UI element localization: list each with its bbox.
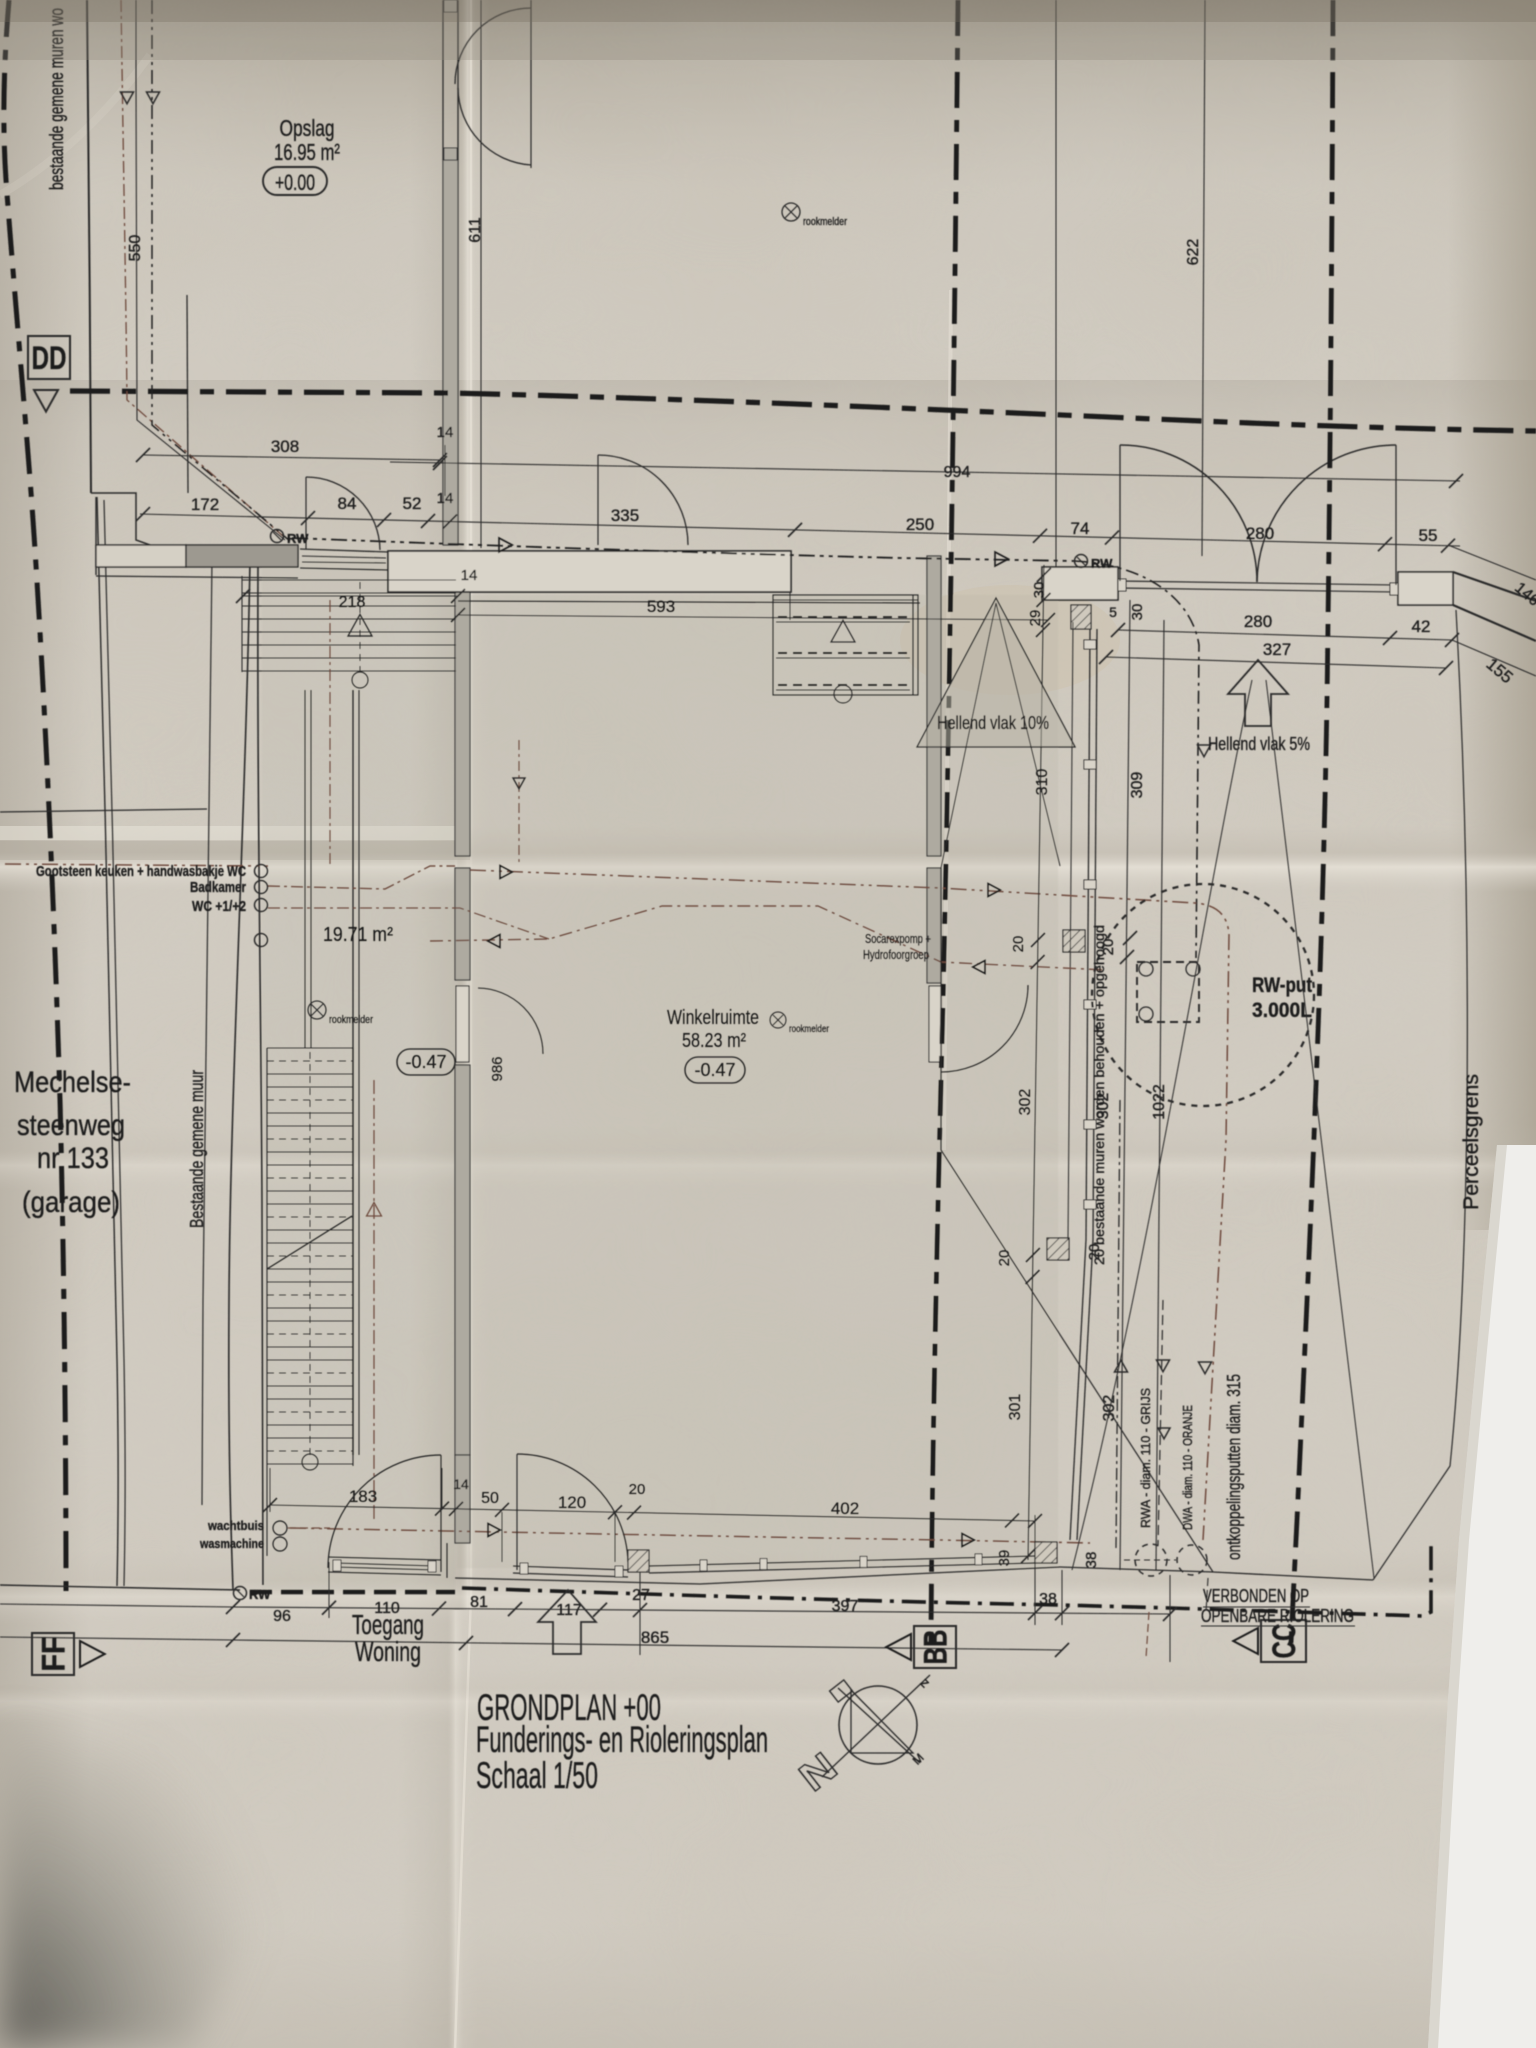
svg-text:BB: BB [918,1630,954,1665]
svg-text:172: 172 [191,495,219,514]
svg-text:52: 52 [403,494,422,513]
svg-text:27: 27 [632,1587,650,1604]
svg-text:38: 38 [1039,1591,1057,1608]
svg-text:WC +1/+2: WC +1/+2 [192,898,246,915]
svg-text:50: 50 [481,1490,499,1507]
svg-text:20: 20 [1010,936,1027,953]
svg-text:865: 865 [641,1628,669,1647]
svg-text:58.23 m²: 58.23 m² [682,1030,746,1052]
svg-text:622: 622 [1185,239,1202,266]
svg-text:5: 5 [1109,604,1117,620]
svg-text:-0.47: -0.47 [694,1060,735,1080]
svg-text:55: 55 [1419,526,1438,545]
svg-text:Perceelsgrens: Perceelsgrens [1460,1074,1483,1210]
svg-text:20 bestaande muren worden beho: 20 bestaande muren worden behouden + opg… [1091,925,1107,1265]
svg-text:Hellend vlak 10%: Hellend vlak 10% [937,713,1049,733]
svg-text:14: 14 [453,1476,469,1492]
svg-text:(garage): (garage) [22,1186,120,1219]
svg-text:ontkoppelingsputten diam. 315: ontkoppelingsputten diam. 315 [1224,1374,1244,1560]
svg-text:280: 280 [1246,524,1274,543]
svg-text:DWA - diam. 110 - ORANJE: DWA - diam. 110 - ORANJE [1180,1405,1195,1530]
svg-text:3.000L: 3.000L [1252,999,1312,1022]
svg-text:38: 38 [1083,1552,1100,1569]
svg-text:DD: DD [32,340,67,376]
svg-text:Badkamer: Badkamer [190,879,246,896]
svg-text:Mechelse-: Mechelse- [14,1066,131,1099]
svg-text:335: 335 [611,506,639,525]
svg-text:1022: 1022 [1151,1084,1168,1120]
svg-text:611: 611 [467,217,484,243]
svg-text:rookmelder: rookmelder [803,216,847,228]
svg-text:550: 550 [127,235,144,262]
svg-text:397: 397 [832,1598,859,1615]
svg-text:+0.00: +0.00 [275,170,315,195]
svg-text:Opslag: Opslag [280,115,335,141]
svg-text:rookmelder: rookmelder [329,1014,373,1026]
svg-text:117: 117 [556,1602,582,1619]
svg-text:308: 308 [271,437,299,456]
svg-text:VERBONDEN OP: VERBONDEN OP [1203,1586,1309,1606]
svg-text:402: 402 [831,1499,859,1518]
svg-text:96: 96 [273,1608,291,1625]
svg-text:302: 302 [1017,1089,1034,1116]
svg-text:280: 280 [1244,612,1272,631]
svg-text:Woning: Woning [355,1636,421,1667]
svg-text:986: 986 [489,1056,506,1081]
svg-text:steenweg: steenweg [17,1109,125,1142]
svg-text:FF: FF [36,1637,72,1672]
svg-text:30: 30 [1031,582,1048,599]
svg-text:29: 29 [1027,610,1044,627]
svg-text:994: 994 [944,464,971,481]
svg-text:81: 81 [470,1594,488,1611]
svg-text:310: 310 [1034,769,1051,796]
svg-text:RW: RW [287,531,309,546]
svg-text:wachtbuis: wachtbuis [207,1518,264,1533]
svg-text:RWA - diam. 110 - GRIJS: RWA - diam. 110 - GRIJS [1138,1388,1153,1528]
svg-text:30: 30 [1129,604,1146,621]
svg-text:327: 327 [1263,640,1291,659]
svg-text:-0.47: -0.47 [405,1052,446,1072]
svg-text:Winkelruimte: Winkelruimte [667,1007,759,1029]
svg-text:wasmachine: wasmachine [199,1536,264,1551]
svg-text:301: 301 [1007,1394,1024,1421]
svg-text:rookmelder: rookmelder [789,1024,830,1035]
svg-text:Hellend vlak 5%: Hellend vlak 5% [1208,734,1310,754]
svg-text:218: 218 [339,594,366,611]
svg-text:Socarexpomp +: Socarexpomp + [865,931,931,946]
svg-text:Gootsteen keuken + handwasbakj: Gootsteen keuken + handwasbakje WC [36,863,246,880]
svg-text:nr 133: nr 133 [37,1142,109,1175]
svg-text:250: 250 [906,515,934,534]
svg-text:120: 120 [558,1493,586,1512]
svg-text:74: 74 [1071,519,1090,538]
svg-text:84: 84 [338,494,357,513]
svg-text:Funderings- en Rioleringsplan: Funderings- en Rioleringsplan [476,1719,768,1760]
svg-text:14: 14 [461,567,478,584]
svg-text:16.95 m²: 16.95 m² [274,139,340,165]
svg-text:OPENBARE RIOLERING: OPENBARE RIOLERING [1201,1606,1354,1626]
svg-text:RW: RW [249,1587,271,1602]
svg-text:Hydrofoorgroep: Hydrofoorgroep [863,947,929,962]
svg-text:Bestaande gemene muur: Bestaande gemene muur [187,1070,207,1228]
svg-text:593: 593 [647,597,675,616]
svg-text:19.71 m²: 19.71 m² [323,924,393,946]
svg-text:309: 309 [1129,772,1146,799]
svg-text:42: 42 [1412,617,1431,636]
svg-text:14: 14 [437,424,454,441]
svg-text:CC: CC [1266,1624,1302,1659]
svg-text:20: 20 [629,1481,646,1498]
svg-text:Schaal 1/50: Schaal 1/50 [476,1755,598,1796]
